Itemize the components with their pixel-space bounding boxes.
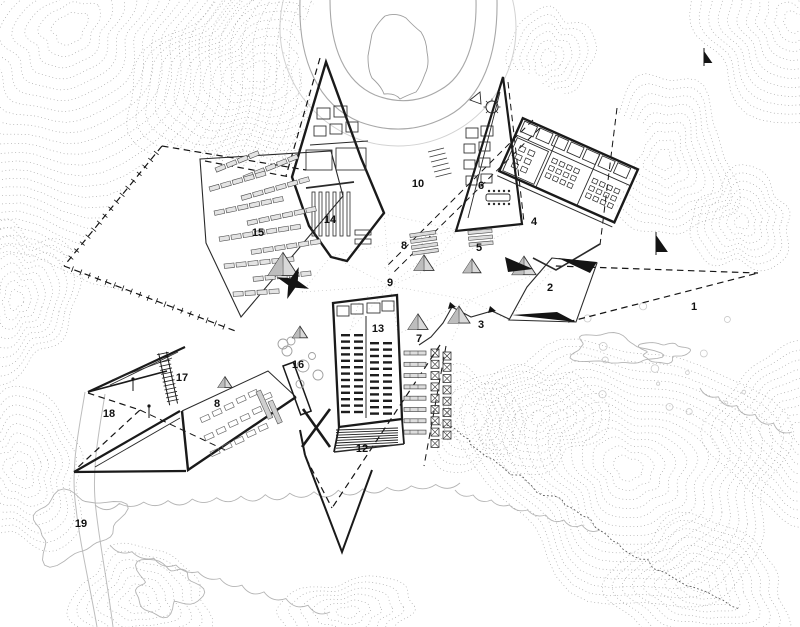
parked-car <box>236 262 246 268</box>
contour-line <box>774 2 800 42</box>
seat-row <box>383 412 392 414</box>
seat-row <box>383 393 392 395</box>
stair-step <box>433 163 449 167</box>
contour-line <box>324 600 370 625</box>
seat-row <box>341 392 350 394</box>
pole-top <box>131 377 134 380</box>
contour-line <box>633 537 761 624</box>
planter-bar <box>404 396 426 400</box>
contour-line <box>727 206 756 236</box>
seat-row <box>370 400 379 402</box>
seat-row <box>383 342 392 344</box>
seat-row <box>354 385 363 387</box>
contour-line <box>12 0 125 79</box>
seat-row <box>341 398 350 400</box>
contour-line <box>461 346 784 597</box>
contour-line <box>614 455 644 481</box>
contour-line <box>0 0 232 176</box>
seat-row <box>370 355 379 357</box>
contour-line <box>718 0 800 97</box>
contour-line <box>449 396 493 442</box>
contour-line <box>710 350 800 519</box>
chair-dot <box>498 190 500 192</box>
contour-line <box>300 588 393 627</box>
tree-cluster <box>136 559 205 617</box>
tuft <box>651 365 659 373</box>
area-label-8-b: 8 <box>214 398 220 410</box>
contour-line <box>243 61 271 82</box>
contour-line <box>788 422 800 445</box>
stair-step <box>434 168 450 172</box>
seat-row <box>341 379 350 381</box>
chair-dot <box>488 190 490 192</box>
rock-coastline-layer <box>428 420 738 609</box>
tuft <box>742 390 746 394</box>
seat-row <box>370 406 379 408</box>
site-plan-page: 1234567889101213141516171819 <box>0 0 800 627</box>
contour-line <box>734 214 749 229</box>
seat-row <box>370 374 379 376</box>
chair-dot <box>508 203 510 205</box>
tuft <box>657 382 660 385</box>
area-label-19: 19 <box>75 518 87 530</box>
site-plan-drawing: 1234567889101213141516171819 <box>0 0 800 627</box>
contour-line <box>0 0 197 144</box>
area-label-13: 13 <box>372 323 384 335</box>
area-label-15: 15 <box>252 227 264 239</box>
tuft <box>724 316 730 322</box>
contour-line <box>643 140 680 180</box>
stair-step <box>436 173 452 177</box>
parked-car <box>233 291 243 296</box>
contour-line <box>0 219 82 386</box>
seat-row <box>370 348 379 350</box>
contour-line <box>11 460 28 479</box>
contour-line <box>730 369 800 501</box>
tree-canopy <box>110 545 330 614</box>
seat-row <box>383 348 392 350</box>
contour-line <box>0 0 173 122</box>
sail-marker <box>704 51 712 63</box>
planter-bar <box>404 362 426 366</box>
area-label-14: 14 <box>324 214 337 226</box>
room <box>466 128 478 138</box>
seat-row <box>370 380 379 382</box>
wall <box>74 471 186 472</box>
seat-row <box>383 380 392 382</box>
contour-line <box>3 451 35 488</box>
contour-line <box>582 428 676 509</box>
seat-row <box>341 353 350 355</box>
contour-line <box>0 236 67 367</box>
contour-line <box>501 384 585 453</box>
tuft <box>700 350 707 357</box>
area-label-17: 17 <box>176 372 188 384</box>
seat-row <box>354 366 363 368</box>
contour-line <box>0 263 45 339</box>
parked-car <box>269 289 279 294</box>
contour-line <box>652 149 672 171</box>
contour-line <box>499 369 752 570</box>
contour-line <box>87 560 192 627</box>
contour-line <box>463 412 478 427</box>
area-label-12: 12 <box>356 443 368 455</box>
contour-line <box>531 411 550 426</box>
seat-row <box>341 366 350 368</box>
area-label-5: 5 <box>476 242 482 254</box>
planter-bar <box>404 430 426 434</box>
parked-car <box>260 259 270 265</box>
contour-line <box>527 32 572 85</box>
seat-row <box>354 372 363 374</box>
parked-car <box>301 271 311 277</box>
seat-row <box>383 355 392 357</box>
shrub-cluster <box>570 333 664 364</box>
contour-line <box>233 53 280 89</box>
contour-line <box>512 377 741 562</box>
stair-step <box>431 158 447 162</box>
chair-dot <box>493 203 495 205</box>
seat-row <box>383 361 392 363</box>
contour-line <box>193 20 316 118</box>
area-label-4: 4 <box>531 216 538 228</box>
contour-line <box>534 40 565 76</box>
contour-line <box>9 290 24 311</box>
seat-row <box>354 334 363 336</box>
tree-canopy <box>95 483 460 510</box>
planter-bar <box>404 408 426 412</box>
area-label-2: 2 <box>547 282 553 294</box>
contour-line <box>737 0 800 79</box>
contour-line <box>277 576 416 627</box>
stair-step <box>428 148 444 152</box>
parked-car <box>245 290 255 295</box>
area-label-10: 10 <box>412 178 424 190</box>
contour-line <box>0 0 161 112</box>
planter-bar <box>404 419 426 423</box>
stair-step <box>430 153 446 157</box>
contour-line <box>524 385 730 553</box>
contour-line <box>97 568 182 627</box>
parked-car <box>224 263 234 269</box>
area-label-9: 9 <box>387 277 393 289</box>
contour-line <box>704 181 776 257</box>
area-label-8: 8 <box>401 240 407 252</box>
contour-line <box>0 0 221 165</box>
seat-row <box>354 404 363 406</box>
contour-line <box>622 529 770 627</box>
seat-row <box>370 368 379 370</box>
contour-line <box>312 594 382 627</box>
contour-line <box>602 512 791 627</box>
contour-line <box>0 272 38 330</box>
area-label-1: 1 <box>691 301 697 313</box>
contour-line <box>0 228 75 377</box>
contour-line <box>336 606 359 618</box>
seat-row <box>383 368 392 370</box>
seat-row <box>354 398 363 400</box>
contour-line <box>728 0 800 88</box>
contour-line <box>0 0 149 101</box>
area-label-16: 16 <box>292 359 304 371</box>
seat-row <box>383 374 392 376</box>
seat-row <box>370 361 379 363</box>
contour-line <box>289 582 405 627</box>
planter-bar <box>404 385 426 389</box>
seat-row <box>383 387 392 389</box>
contour-line <box>474 354 774 589</box>
seat-row <box>370 342 379 344</box>
contour-line <box>25 0 113 68</box>
tuft <box>666 403 673 410</box>
stair-tooth <box>486 101 488 103</box>
seat-row <box>341 385 350 387</box>
contour-line <box>612 520 781 627</box>
planter-bar <box>404 351 426 355</box>
contour-line <box>223 45 290 96</box>
contour-line <box>129 592 150 607</box>
path-edge <box>74 392 97 627</box>
seat-row <box>341 340 350 342</box>
contour-line <box>524 404 559 433</box>
rock-edge-line <box>428 420 738 609</box>
tuft <box>724 401 728 405</box>
contour-line <box>494 378 594 460</box>
contour-line <box>676 569 720 599</box>
contour-line <box>38 2 101 57</box>
contour-line <box>536 394 719 545</box>
area-label-18: 18 <box>103 408 115 420</box>
contour-line <box>769 405 800 464</box>
contour-line <box>541 49 557 67</box>
contour-line <box>448 339 794 607</box>
contour-line <box>509 391 577 446</box>
seat-row <box>370 393 379 395</box>
seat-row <box>341 411 350 413</box>
chair-dot <box>503 203 505 205</box>
contour-line <box>593 437 665 500</box>
contour-line <box>456 404 486 435</box>
contour-line <box>0 424 56 516</box>
area-label-6: 6 <box>478 180 484 192</box>
tree-canopy <box>455 490 600 532</box>
contour-line <box>603 446 654 491</box>
contour-line <box>0 396 76 543</box>
seat-row <box>370 412 379 414</box>
contour-line <box>487 362 763 580</box>
shrub-cluster <box>638 343 690 364</box>
chair-dot <box>488 203 490 205</box>
seat-row <box>341 360 350 362</box>
seat-row <box>354 353 363 355</box>
seat-row <box>341 372 350 374</box>
contour-line <box>750 387 800 483</box>
seat-row <box>354 347 363 349</box>
contour-line <box>687 577 711 593</box>
contour-line <box>548 402 709 536</box>
contour-line <box>2 281 31 320</box>
contour-line <box>571 419 687 518</box>
seat-row <box>354 340 363 342</box>
parked-car <box>248 260 258 266</box>
contour-line <box>0 0 185 133</box>
seat-row <box>354 411 363 413</box>
chair-dot <box>508 190 510 192</box>
seat-row <box>354 392 363 394</box>
contour-line <box>765 0 800 52</box>
contour-line <box>203 28 308 110</box>
contour-line <box>0 0 209 154</box>
parked-car <box>253 276 263 282</box>
seat-row <box>341 347 350 349</box>
seat-row <box>354 379 363 381</box>
contour-line <box>719 197 762 243</box>
contour-line <box>709 0 800 105</box>
contour-line <box>51 12 88 45</box>
seat-row <box>383 406 392 408</box>
contour-line <box>516 397 568 439</box>
contour-line <box>560 411 698 527</box>
parked-car <box>257 290 267 295</box>
seat-row <box>341 404 350 406</box>
contour-line <box>746 0 800 70</box>
contour-line <box>118 584 161 613</box>
chair-dot <box>498 203 500 205</box>
area-label-7: 7 <box>416 333 422 345</box>
room <box>464 144 475 153</box>
site-clearing-mask <box>62 0 760 558</box>
area-label-3: 3 <box>478 319 484 331</box>
sail-marker <box>656 235 668 252</box>
contour-line <box>720 360 800 511</box>
contour-line <box>783 11 800 33</box>
seat-row <box>341 334 350 336</box>
contour-line <box>0 414 63 524</box>
contour-line <box>0 254 52 348</box>
pole-top <box>147 404 150 407</box>
chair-dot <box>493 190 495 192</box>
contour-line <box>697 173 783 264</box>
seat-row <box>370 387 379 389</box>
contour-line <box>0 442 42 497</box>
chair-dot <box>503 190 505 192</box>
tuft <box>686 371 690 375</box>
seat-row <box>354 360 363 362</box>
seat-row <box>383 400 392 402</box>
planter-bar <box>404 374 426 378</box>
contour-line <box>479 365 610 475</box>
path-edge <box>94 394 113 627</box>
